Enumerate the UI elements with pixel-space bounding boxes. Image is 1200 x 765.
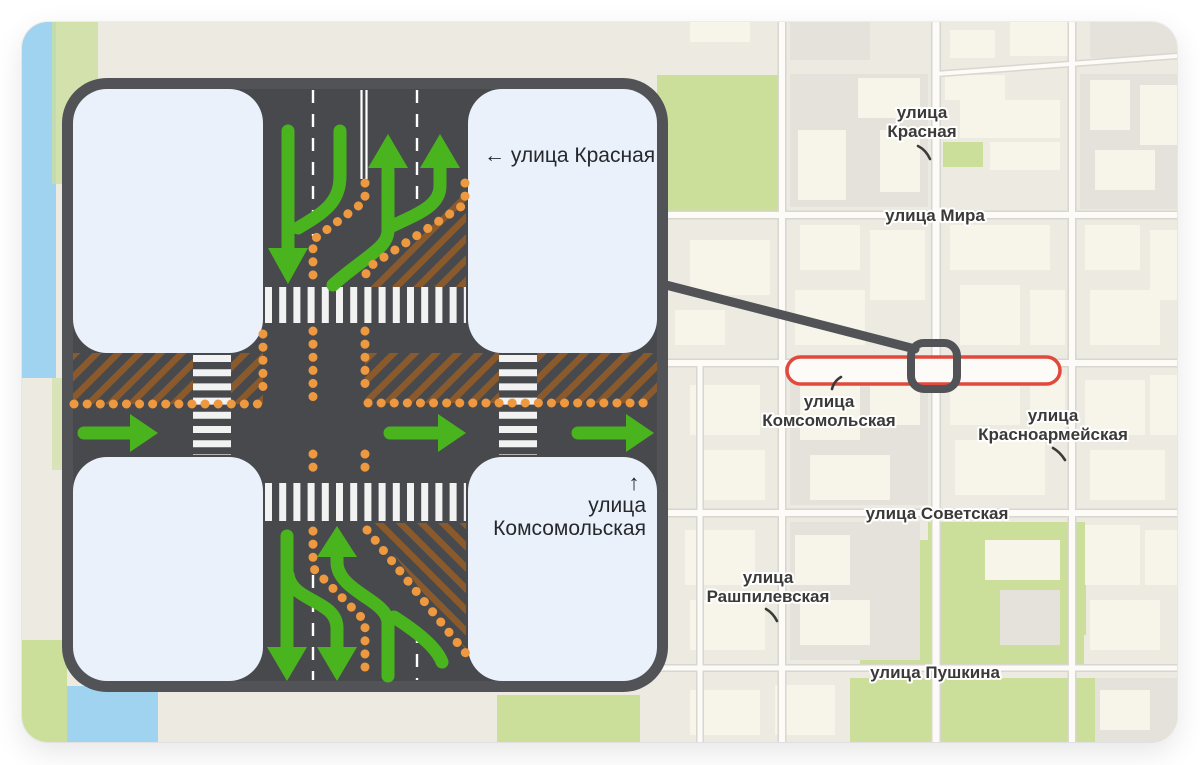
city-block-sw	[73, 457, 263, 681]
closed-area-hatch-west	[73, 353, 263, 404]
inset-label-krasnaya: ← улица Красная	[484, 144, 655, 167]
street-label-mira: улица Мира	[885, 206, 985, 225]
street-label-pushkina: улица Пушкина	[870, 663, 1000, 682]
city-block-nw	[73, 89, 263, 353]
svg-text:Красная: Красная	[887, 122, 956, 141]
svg-text:Комсомольская: Комсомольская	[493, 517, 646, 540]
map-canvas: улица Красная улица Мира улица Комсомоль…	[22, 22, 1177, 742]
map-card: улица Красная улица Мира улица Комсомоль…	[22, 22, 1177, 742]
svg-text:улица: улица	[804, 392, 855, 411]
svg-text:улица: улица	[743, 568, 794, 587]
page: улица Красная улица Мира улица Комсомоль…	[0, 0, 1200, 765]
city-block-ne	[468, 89, 657, 353]
svg-text:улица Мира: улица Мира	[885, 206, 985, 225]
svg-text:Красноармейская: Красноармейская	[978, 425, 1128, 444]
street-label-sovetskaya: улица Советская	[866, 504, 1009, 523]
svg-text:улица: улица	[1028, 406, 1079, 425]
up-arrow-icon: ↑	[629, 470, 640, 495]
svg-text:улица Пушкина: улица Пушкина	[870, 663, 1000, 682]
svg-text:Рашпилевская: Рашпилевская	[707, 587, 830, 606]
svg-text:Комсомольская: Комсомольская	[762, 411, 895, 430]
svg-text:улица: улица	[897, 103, 948, 122]
intersection-inset: ← улица Красная ↑ улица Комсомольская	[62, 78, 668, 692]
closed-segment-highlight	[787, 357, 1060, 384]
svg-text:улица: улица	[588, 494, 646, 517]
svg-text:улица Советская: улица Советская	[866, 504, 1009, 523]
